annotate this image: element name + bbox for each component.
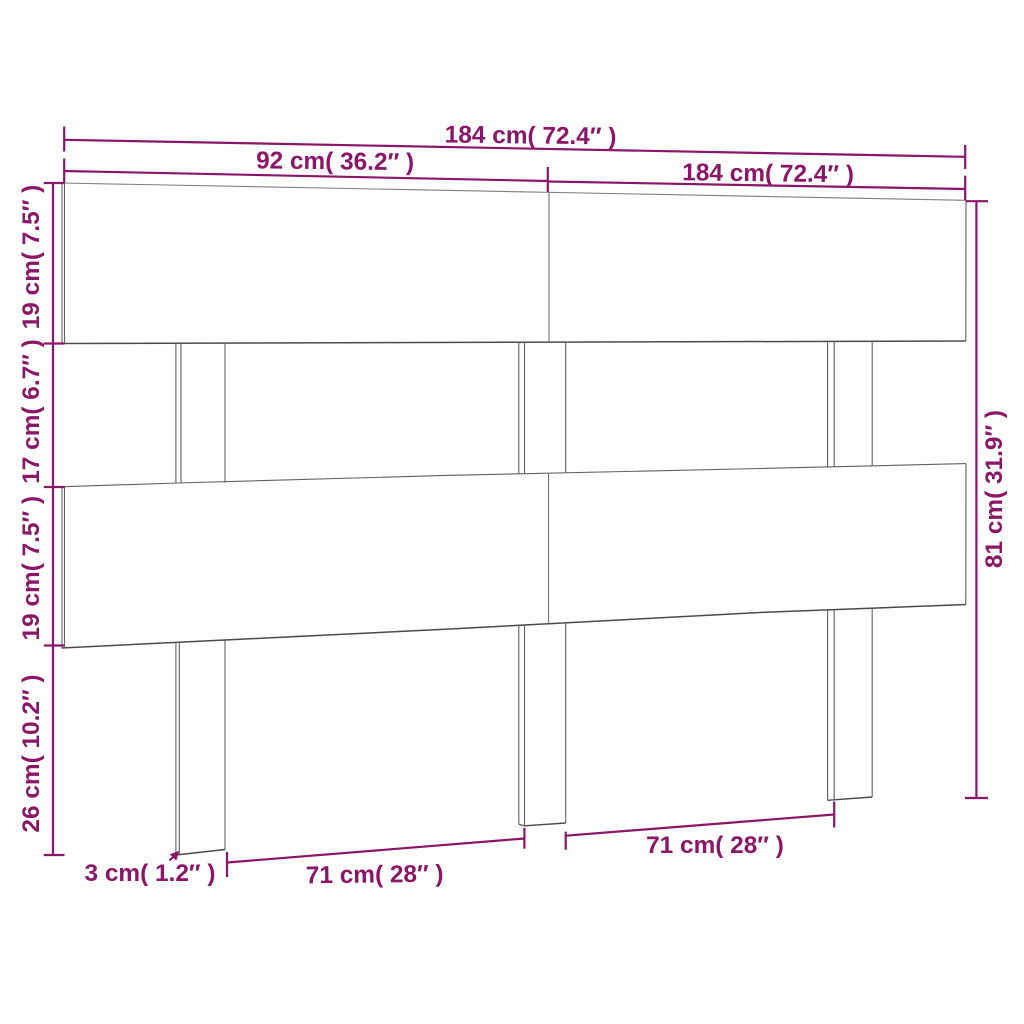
svg-text:19 cm( 7.5″ ): 19 cm( 7.5″ ) [18,185,45,330]
svg-text:3 cm( 1.2″ ): 3 cm( 1.2″ ) [85,860,216,887]
svg-text:81 cm( 31.9″ ): 81 cm( 31.9″ ) [981,410,1008,568]
svg-text:26 cm( 10.2″ ): 26 cm( 10.2″ ) [18,674,45,832]
svg-text:19 cm( 7.5″ ): 19 cm( 7.5″ ) [18,496,45,641]
svg-text:71 cm( 28″ ): 71 cm( 28″ ) [306,861,444,890]
svg-text:92 cm( 36.2″ ): 92 cm( 36.2″ ) [256,147,414,176]
svg-text:184 cm( 72.4″ ): 184 cm( 72.4″ ) [682,159,854,188]
svg-text:17 cm( 6.7″ ): 17 cm( 6.7″ ) [18,339,45,484]
svg-text:184 cm( 72.4″ ): 184 cm( 72.4″ ) [445,121,617,150]
svg-text:71 cm( 28″ ): 71 cm( 28″ ) [646,832,784,859]
